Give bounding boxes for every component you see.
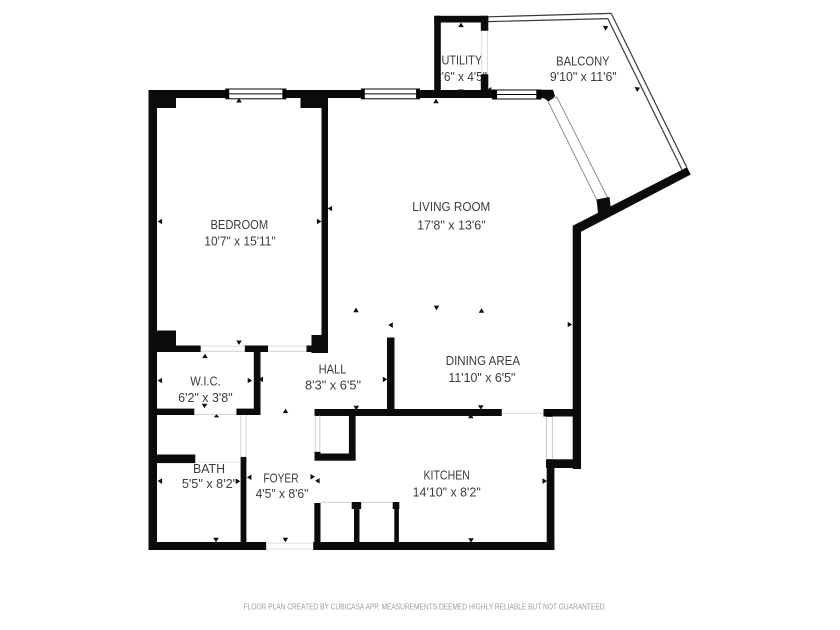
svg-text:8'3" x 6'5": 8'3" x 6'5" — [305, 378, 361, 393]
svg-text:LIVING ROOM: LIVING ROOM — [412, 199, 490, 214]
svg-text:17'8" x 13'6": 17'8" x 13'6" — [417, 218, 486, 233]
svg-text:UTILITY: UTILITY — [441, 52, 482, 67]
svg-text:5'5" x 8'2": 5'5" x 8'2" — [182, 476, 237, 491]
svg-text:9'10" x 11'6": 9'10" x 11'6" — [550, 69, 617, 84]
svg-text:BALCONY: BALCONY — [556, 53, 610, 68]
svg-text:4'5" x 8'6": 4'5" x 8'6" — [256, 486, 309, 501]
svg-text:2'6" x 4'5": 2'6" x 4'5" — [435, 69, 487, 84]
svg-text:HALL: HALL — [319, 361, 347, 376]
svg-text:11'10" x 6'5": 11'10" x 6'5" — [448, 370, 515, 385]
svg-text:FOYER: FOYER — [263, 471, 298, 486]
svg-text:KITCHEN: KITCHEN — [423, 468, 470, 483]
svg-text:14'10" x 8'2": 14'10" x 8'2" — [413, 485, 481, 500]
svg-text:DINING AREA: DINING AREA — [446, 353, 521, 368]
svg-text:FLOOR PLAN CREATED BY CUBICASA: FLOOR PLAN CREATED BY CUBICASA APP. MEAS… — [244, 602, 607, 612]
svg-text:6'2" x 3'8": 6'2" x 3'8" — [178, 390, 233, 405]
svg-text:10'7" x 15'11": 10'7" x 15'11" — [204, 233, 275, 248]
svg-text:W.I.C.: W.I.C. — [190, 373, 220, 388]
svg-text:BATH: BATH — [193, 461, 225, 476]
svg-text:BEDROOM: BEDROOM — [210, 217, 268, 232]
